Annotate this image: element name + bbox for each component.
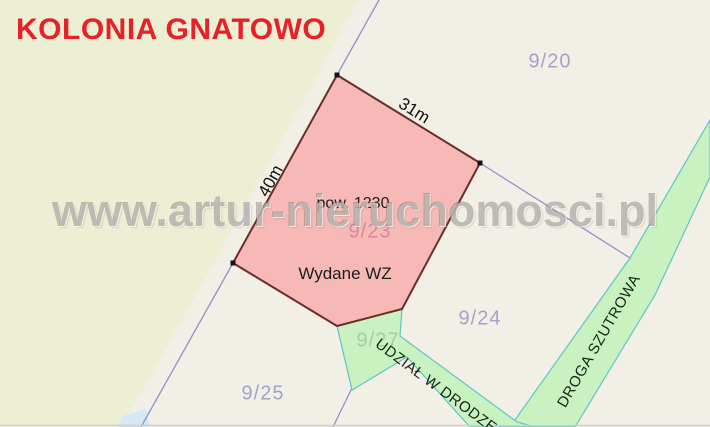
area-title: KOLONIA GNATOWO (16, 13, 326, 47)
plot-vertex-dot-top-right (478, 161, 483, 166)
plot-vertex-dot-top-left (335, 73, 340, 78)
parcel-label-9-25: 9/25 (242, 383, 285, 406)
watermark: www.artur-nieruchomosci.pl (52, 185, 658, 237)
parcel-label-9-24: 9/24 (459, 308, 502, 331)
parcel-label-9-20: 9/20 (529, 51, 572, 74)
plot-decision-label: Wydane WZ (298, 264, 391, 284)
map-screenshot: KOLONIA GNATOWO 9/20 9/24 9/25 9/27 9/23… (0, 0, 710, 427)
plot-vertex-dot-left (231, 261, 236, 266)
